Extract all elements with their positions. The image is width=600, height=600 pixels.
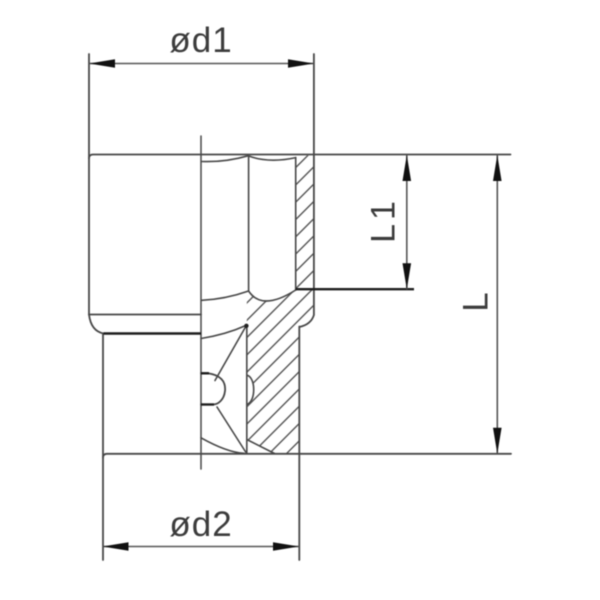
svg-text:L: L: [457, 292, 496, 311]
svg-text:L1: L1: [365, 197, 403, 243]
svg-text:ød2: ød2: [169, 505, 232, 544]
svg-text:ød1: ød1: [169, 21, 232, 60]
